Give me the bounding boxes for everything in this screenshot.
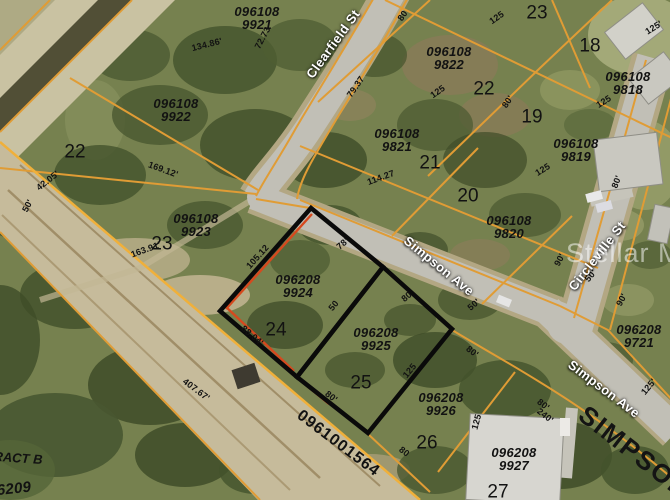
parcel-map: 096108 9921 096108 9822 096108 9818 0961… (0, 0, 670, 500)
car (560, 418, 570, 436)
watermark: Stellar MLS (566, 238, 670, 269)
house (466, 414, 564, 500)
house (593, 132, 663, 191)
